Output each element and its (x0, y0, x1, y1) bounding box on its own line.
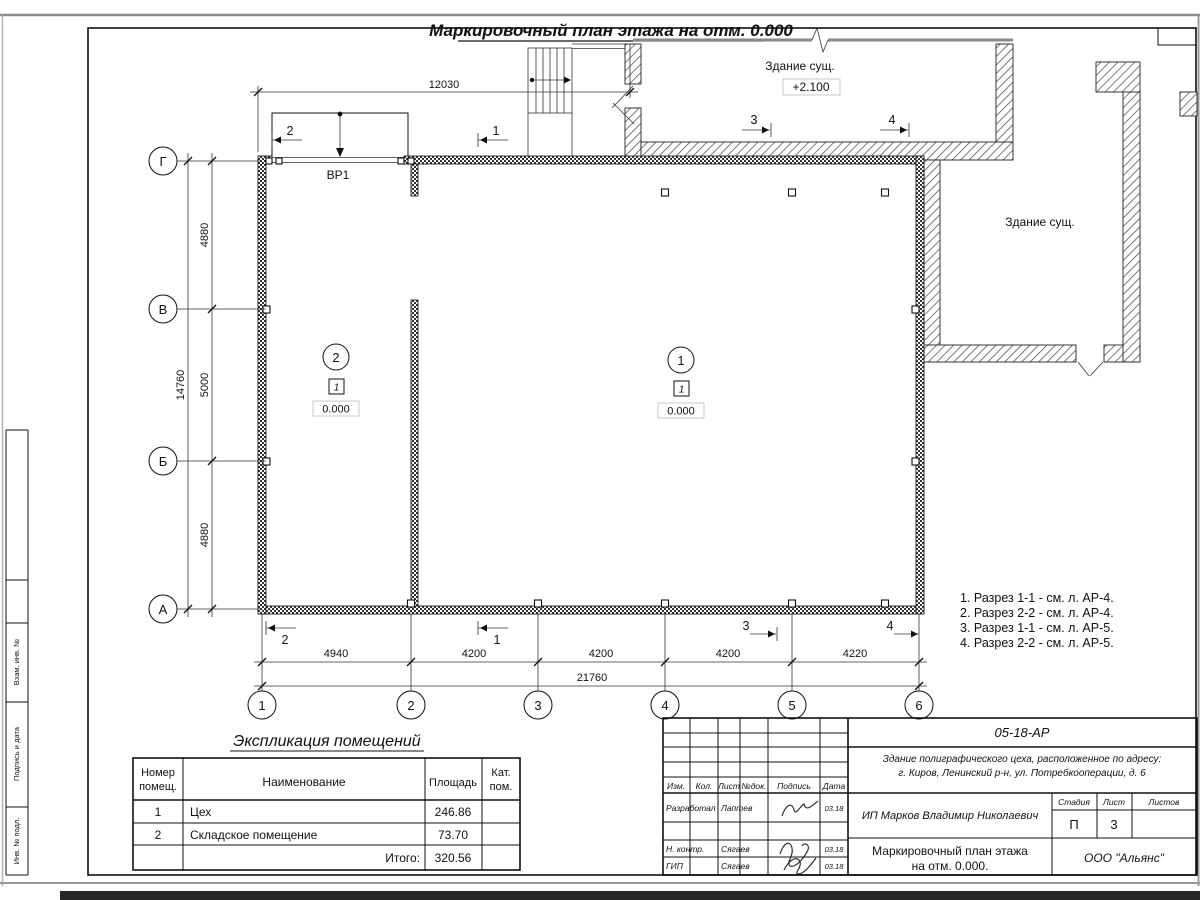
drawing-title: Маркировочный план этажа на отм. 0.000 (429, 21, 793, 41)
exterior-stairs (528, 44, 625, 156)
note-line: 4. Разрез 2-2 - см. л. АР-5. (960, 636, 1114, 650)
date-developer: 03.18 (825, 804, 845, 813)
note-line: 2. Разрез 2-2 - см. л. АР-4. (960, 606, 1114, 620)
row-num: 2 (155, 828, 162, 842)
col-num2: помещ. (139, 781, 177, 793)
axes-left: Г В Б А 4880 5000 4880 14760 (149, 147, 266, 623)
room-number: 1 (677, 353, 684, 368)
axis-letter-a: А (159, 602, 168, 617)
section-notes: 1. Разрез 1-1 - см. л. АР-4. 2. Разрез 2… (960, 591, 1114, 650)
object-description-2: г. Киров, Ленинский р-н, ул. Потребкоопе… (898, 767, 1146, 779)
title-block: Изм. Кол. Лист №док. Подпись Дата Разраб… (663, 718, 1197, 875)
axis-number-3: 3 (534, 698, 541, 713)
name-gip: Сягаев (721, 861, 750, 871)
signature-developer (782, 801, 818, 816)
signature-gip (784, 858, 816, 874)
frame-label-vzam: Взам. инв. № (12, 639, 21, 685)
sheets-label: Листов (1148, 797, 1181, 807)
sheet-label: Лист (1102, 797, 1125, 807)
role-developer: Разработал (666, 803, 716, 813)
axis-letter-b: Б (159, 454, 168, 469)
note-line: 1. Разрез 1-1 - см. л. АР-4. (960, 591, 1114, 605)
row-name: Складское помещение (190, 828, 318, 842)
dim-left-3: 4880 (199, 523, 211, 547)
room-type-tag: 1 (679, 385, 685, 396)
col-cat2: пом. (490, 781, 513, 793)
axis-number-5: 5 (788, 698, 795, 713)
col-kol: Кол. (696, 781, 713, 791)
section-mark-4: 4 (887, 619, 894, 633)
drawing-title-1: Маркировочный план этажа (872, 844, 1028, 858)
columns (263, 189, 919, 607)
section-mark-3: 3 (743, 619, 750, 633)
explication-title: Экспликация помещений (233, 733, 420, 750)
dim-left-1: 4880 (199, 223, 211, 247)
axis-number-1: 1 (258, 698, 265, 713)
main-building-walls: ВР1 (258, 156, 924, 614)
floor-plan-drawing: Взам. инв. № Подпись и дата Инв. № подл.… (0, 0, 1200, 900)
doc-number: 05-18-АР (995, 725, 1050, 740)
axes-bottom: 4940 4200 4200 4200 4220 21760 1 2 3 4 5… (248, 614, 933, 719)
company-name: ООО "Альянс" (1084, 851, 1165, 865)
axis-letter-v: В (159, 302, 168, 317)
room-level: 0.000 (667, 406, 695, 418)
drawing-title-2: на отм. 0.000. (912, 859, 989, 873)
row-area: 246.86 (435, 805, 472, 819)
name-developer: Лаптев (720, 803, 753, 813)
dim-left-2: 5000 (199, 373, 211, 397)
axis-letter-g: Г (159, 154, 166, 169)
drawing-sheet: Взам. инв. № Подпись и дата Инв. № подл.… (0, 0, 1200, 900)
col-name: Наименование (262, 775, 346, 789)
stair-direction-arrow-icon (564, 77, 571, 84)
dim-bottom-total: 21760 (577, 672, 608, 684)
stage-label: Стадия (1058, 797, 1090, 807)
room-level: 0.000 (322, 404, 350, 416)
row-area: 73.70 (438, 828, 468, 842)
corner-box (1158, 28, 1196, 45)
dim-bottom-2: 4200 (462, 648, 486, 660)
section-mark-2: 2 (282, 633, 289, 647)
frame-label-inv: Инв. № подл. (12, 818, 21, 865)
date-gip: 03.18 (825, 862, 845, 871)
object-description-1: Здание полиграфического цеха, расположен… (883, 753, 1162, 765)
client-name: ИП Марков Владимир Николаевич (862, 810, 1039, 822)
break-line-icon (812, 28, 828, 52)
dim-bottom-5: 4220 (843, 648, 867, 660)
dim-bottom-1: 4940 (324, 648, 348, 660)
scan-edge-band (60, 891, 1200, 900)
note-line: 3. Разрез 1-1 - см. л. АР-5. (960, 621, 1114, 635)
axis-number-4: 4 (661, 698, 668, 713)
row-name: Цех (190, 805, 211, 819)
dim-bottom-3: 4200 (589, 648, 613, 660)
existing-building-top-level: +2.100 (792, 80, 829, 94)
section-marks-bottom: 2 1 3 4 (266, 619, 919, 647)
explication-table: Экспликация помещений Номер помещ. Наиме… (133, 733, 520, 870)
col-podpis: Подпись (777, 781, 811, 791)
door-swing (1078, 362, 1089, 376)
total-value: 320.56 (435, 851, 472, 865)
col-list: Лист (717, 781, 740, 791)
room-type-tag: 1 (334, 383, 340, 394)
room-number: 2 (332, 350, 339, 365)
dim-12030: 12030 (429, 79, 460, 91)
role-ncontr: Н. контр. (666, 844, 704, 854)
total-label: Итого: (385, 851, 420, 865)
section-mark-3: 3 (751, 113, 758, 127)
stage-value: П (1069, 817, 1078, 832)
col-data: Дата (822, 781, 846, 791)
axis-number-2: 2 (407, 698, 414, 713)
role-gip: ГИП (666, 861, 684, 871)
door-swing (1090, 362, 1103, 376)
existing-building-right-label: Здание сущ. (1005, 215, 1074, 229)
existing-building-right: Здание сущ. (924, 62, 1197, 376)
gate-label: ВР1 (327, 168, 350, 182)
existing-building-top: Здание сущ. +2.100 (612, 28, 1013, 160)
col-num: Номер (141, 767, 175, 779)
col-izm: Изм. (667, 781, 685, 791)
page-title: Маркировочный план этажа на отм. 0.000 (429, 21, 793, 40)
section-mark-1: 1 (494, 633, 501, 647)
frame-label-podpis: Подпись и дата (12, 726, 21, 781)
dimension-top: 12030 (250, 44, 638, 152)
sheet-value: 3 (1110, 817, 1117, 832)
existing-building-top-label: Здание сущ. (765, 59, 834, 73)
name-ncontr: Сягаев (721, 844, 750, 854)
room-tag-2: 2 1 0.000 (313, 344, 359, 416)
col-cat: Кат. (491, 767, 510, 779)
date-ncontr: 03.18 (825, 845, 845, 854)
dim-bottom-4: 4200 (716, 648, 740, 660)
frame-attribute-strip: Взам. инв. № Подпись и дата Инв. № подл. (6, 430, 28, 875)
section-mark-2: 2 (287, 124, 294, 138)
section-mark-4: 4 (889, 113, 896, 127)
axis-number-6: 6 (915, 698, 922, 713)
row-num: 1 (155, 805, 162, 819)
dim-left-total: 14760 (175, 370, 187, 401)
col-ndok: №док. (741, 781, 766, 791)
gate-arrow-icon (336, 148, 344, 157)
col-area: Площадь (429, 777, 477, 789)
room-tag-1: 1 1 0.000 (658, 347, 704, 418)
signature-ncontr (780, 843, 808, 866)
section-mark-1: 1 (493, 124, 500, 138)
